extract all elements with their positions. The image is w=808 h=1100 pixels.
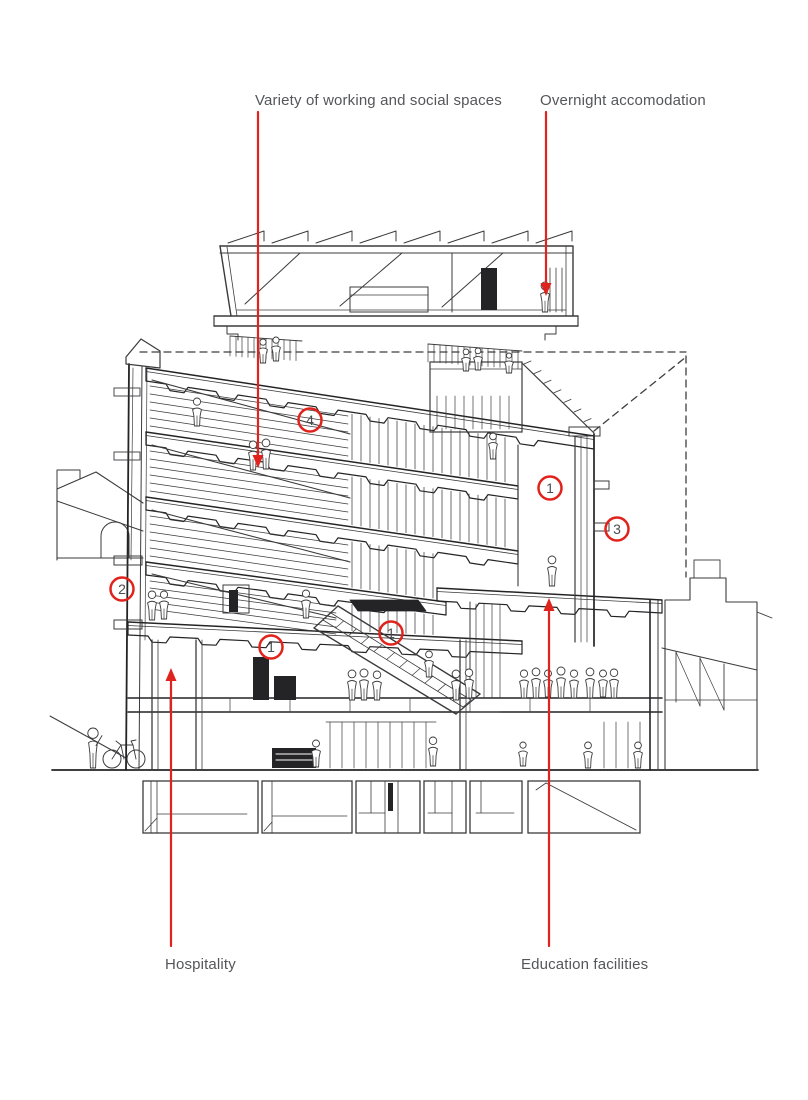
label-overnight-accomodation: Overnight accomodation	[540, 92, 706, 109]
massing-envelope-dashed	[140, 352, 686, 577]
label-education-facilities: Education facilities	[521, 956, 648, 973]
basement-vaults	[143, 781, 640, 833]
architectural-section-page: 413211 Variety of working and social spa…	[0, 0, 808, 1100]
figures	[148, 282, 643, 768]
left-context	[50, 470, 758, 770]
label-working-spaces: Variety of working and social spaces	[255, 92, 502, 109]
label-hospitality: Hospitality	[165, 956, 236, 973]
building-section-drawing	[0, 0, 808, 1100]
rooftop-pavilion	[214, 231, 578, 340]
right-context	[662, 560, 772, 770]
